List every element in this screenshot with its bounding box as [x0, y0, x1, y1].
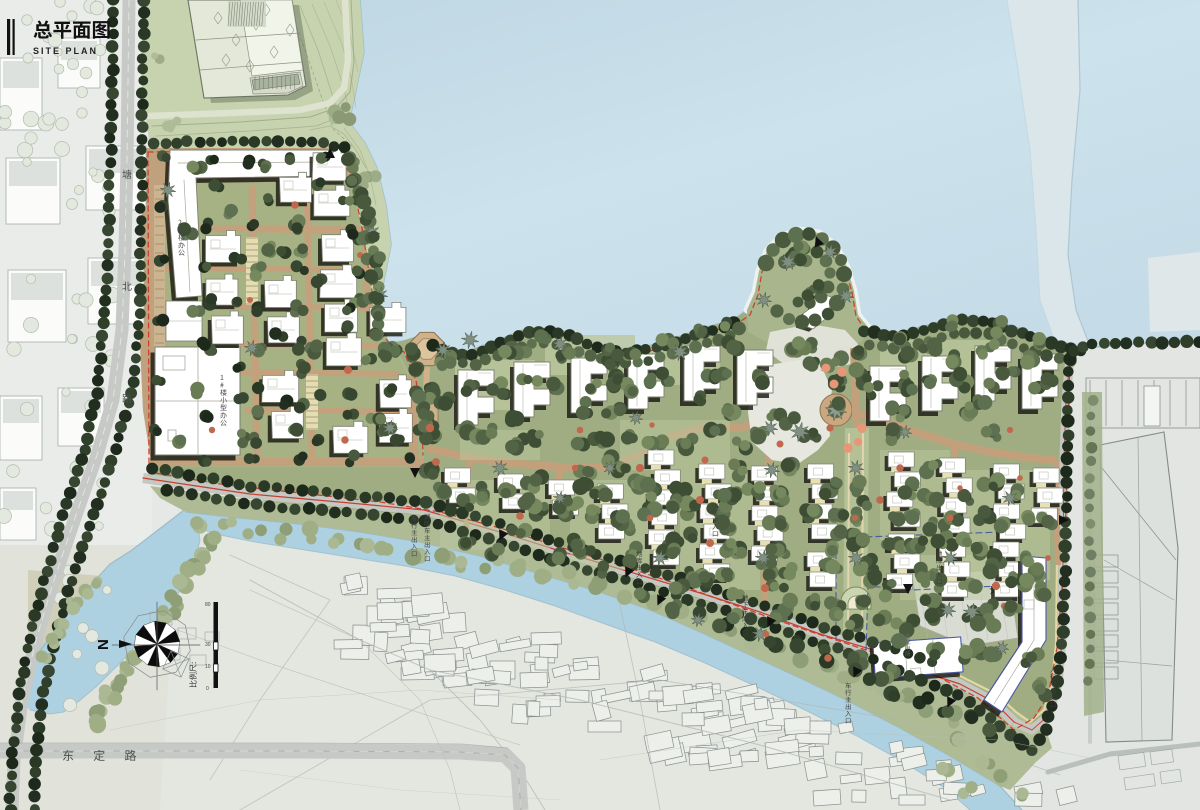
- svg-text:N: N: [95, 639, 112, 650]
- svg-text:10: 10: [205, 664, 211, 670]
- svg-text:80: 80: [205, 602, 211, 608]
- svg-text:SITE PLAN: SITE PLAN: [33, 46, 98, 56]
- svg-text:30: 30: [205, 642, 211, 648]
- svg-text:0: 0: [206, 686, 209, 692]
